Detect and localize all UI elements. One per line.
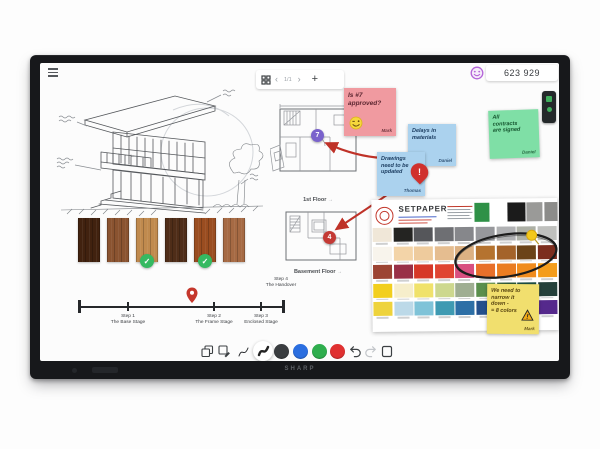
palette-swatch (455, 245, 474, 259)
page-indicator: 1/1 (282, 77, 294, 83)
add-page-icon[interactable]: + (305, 74, 318, 86)
palette-swatch-label (376, 298, 388, 300)
palette-swatch-label (417, 280, 429, 282)
timeline-end-cap (282, 300, 285, 313)
pen-color-blue[interactable] (293, 344, 308, 359)
desktop-background: ‹ 1/1 › + 623 929 (0, 0, 600, 449)
palette-swatch-label (459, 316, 471, 318)
wood-swatch[interactable] (107, 218, 129, 262)
palette-swatch (435, 301, 454, 315)
whiteboard-screen: ‹ 1/1 › + 623 929 (40, 63, 559, 361)
palette-swatch-label (541, 297, 553, 299)
palette-swatch (538, 245, 557, 259)
palette-swatch-label (479, 260, 491, 262)
palette-swatch (373, 302, 392, 316)
timeline[interactable]: Step 1The Base StageStep 2The Frame Stag… (78, 281, 288, 331)
palette-swatch-label (376, 280, 388, 282)
palette-swatch (435, 246, 454, 260)
wood-swatch[interactable] (223, 218, 245, 262)
palette-swatch-label (499, 242, 511, 244)
palette-swatch (456, 282, 475, 296)
palette-swatch-label (418, 298, 430, 300)
palette-swatch (373, 246, 392, 260)
palette-swatch-label (479, 279, 491, 281)
approved-check-icon[interactable]: ✓ (198, 254, 212, 268)
menu-icon[interactable] (48, 68, 58, 79)
first-floor-label: 1st Floor → (278, 197, 358, 203)
timeline-tick (127, 302, 129, 311)
house-sketch[interactable] (55, 80, 270, 230)
palette-swatch-label (541, 260, 553, 262)
pen-color-dark[interactable] (274, 344, 289, 359)
palette-swatch-label (500, 260, 512, 262)
palette-swatch (393, 228, 412, 242)
palette-swatch-label (479, 242, 491, 244)
palette-swatch-label (520, 278, 532, 280)
timeline-step-label: Step 1The Base Stage (97, 314, 159, 326)
palette-swatch (538, 282, 557, 296)
palette-swatch (434, 227, 453, 241)
palette-swatch (456, 301, 475, 315)
pen-color-red[interactable] (330, 344, 345, 359)
palette-swatch-label (438, 261, 450, 263)
palette-swatch-label (397, 298, 409, 300)
note-author: Daniel (522, 149, 536, 155)
drawing-toolbar (195, 339, 405, 361)
undo-icon[interactable] (349, 345, 362, 358)
plan-link-icon[interactable]: → (328, 197, 333, 203)
palette-swatch (415, 301, 434, 315)
palette-swatch (414, 283, 433, 297)
prev-page-icon[interactable]: ‹ (271, 75, 282, 84)
timeline-step-label: Step 4The Handover (250, 277, 312, 289)
palette-header-swatch (544, 202, 557, 221)
redo-icon[interactable] (364, 345, 377, 358)
palette-swatch (476, 264, 495, 278)
palette-swatch (496, 226, 515, 240)
palette-swatch (435, 283, 454, 297)
plan-marker-7[interactable]: 7 (311, 129, 324, 142)
palette-swatch-label (396, 243, 408, 245)
palette-swatch (476, 227, 495, 241)
note-author: Mark (524, 326, 535, 331)
palette-swatch (517, 245, 536, 259)
basement-floor-plan[interactable] (282, 208, 362, 266)
bezel-port (92, 367, 118, 373)
pen-color-green[interactable] (312, 344, 327, 359)
reaction-smiley-icon[interactable] (470, 66, 484, 80)
palette-swatch-label (541, 278, 553, 280)
approved-check-icon[interactable]: ✓ (140, 254, 154, 268)
basement-floor-label: Basement Floor → (278, 269, 358, 275)
palette-swatch (517, 263, 536, 277)
palette-swatch-label (458, 242, 470, 244)
palette-swatch (414, 246, 433, 260)
palette-swatch (373, 228, 392, 242)
palette-swatch (414, 264, 433, 278)
bezel-led (72, 368, 77, 373)
sticky-note-contracts[interactable]: All contracts are signed Daniel (488, 109, 540, 159)
palette-swatch-label (417, 261, 429, 263)
palette-swatch-label (458, 261, 470, 263)
timeline-line (78, 306, 284, 308)
palette-swatch (496, 245, 515, 259)
palette-swatch (394, 302, 413, 316)
warning-triangle-icon: ! (521, 309, 534, 321)
map-pin-icon[interactable] (186, 287, 198, 304)
plan-marker-4[interactable]: 4 (323, 231, 336, 244)
palette-swatch (373, 283, 392, 297)
palette-swatch-label (397, 317, 409, 319)
timeline-start-cap (78, 300, 81, 313)
timeline-tick (213, 302, 215, 311)
clear-board-icon[interactable] (381, 345, 393, 358)
palette-swatch (538, 300, 557, 314)
palette-swatch-label (459, 298, 471, 300)
reaction-counter[interactable]: 623 929 (486, 65, 558, 81)
sharp-display-monitor: ‹ 1/1 › + 623 929 (30, 55, 570, 379)
screen-sensor-puck (542, 91, 556, 123)
next-page-icon[interactable]: › (294, 75, 305, 84)
wink-smiley-icon (349, 116, 363, 130)
palette-swatch-label (438, 316, 450, 318)
palette-swatch-label (376, 261, 388, 263)
yellow-pin-icon (526, 229, 541, 245)
palette-swatch-label (438, 279, 450, 281)
palette-swatch-label (520, 260, 532, 262)
palette-swatch-label (500, 279, 512, 281)
palette-header-swatch (507, 202, 525, 221)
palette-swatch (497, 263, 516, 277)
palette-swatch (394, 265, 413, 279)
palette-header-swatch (526, 202, 542, 221)
palette-swatch (455, 227, 474, 241)
wood-swatches: ✓✓ (78, 218, 288, 270)
timeline-step-label: Step 3Enclosed Stage (230, 314, 292, 326)
palette-swatch (435, 264, 454, 278)
wood-swatch[interactable] (78, 218, 100, 262)
plan-link-icon[interactable]: → (337, 269, 342, 275)
palette-swatch (373, 265, 392, 279)
sticky-note-approval[interactable]: Is #7 approved? Mark (344, 88, 396, 136)
palette-swatch (393, 246, 412, 260)
palette-swatch-label (438, 298, 450, 300)
palette-swatch-label (438, 242, 450, 244)
palette-swatch-label (376, 243, 388, 245)
palette-swatch (476, 245, 495, 259)
palette-swatch-label (397, 261, 409, 263)
palette-swatch (414, 227, 433, 241)
sticky-note-colors[interactable]: We need to narrow it down - = 8 colors !… (487, 284, 539, 334)
wood-swatch[interactable] (165, 218, 187, 262)
palette-header-swatch (474, 203, 489, 222)
palette-swatch (394, 283, 413, 297)
note-author: Thomas (404, 188, 421, 193)
palette-swatch (455, 264, 474, 278)
note-author: Daniel (438, 158, 452, 163)
timeline-tick (260, 302, 262, 311)
palette-swatch-label (541, 315, 553, 317)
palette-swatch-label (541, 241, 553, 243)
palette-swatch-label (418, 317, 430, 319)
note-author: Mark (381, 128, 392, 133)
palette-swatch-label (377, 317, 389, 319)
palette-swatch-label (397, 280, 409, 282)
palette-swatch-label (417, 243, 429, 245)
palette-swatch (538, 263, 557, 277)
palette-swatch-label (459, 279, 471, 281)
